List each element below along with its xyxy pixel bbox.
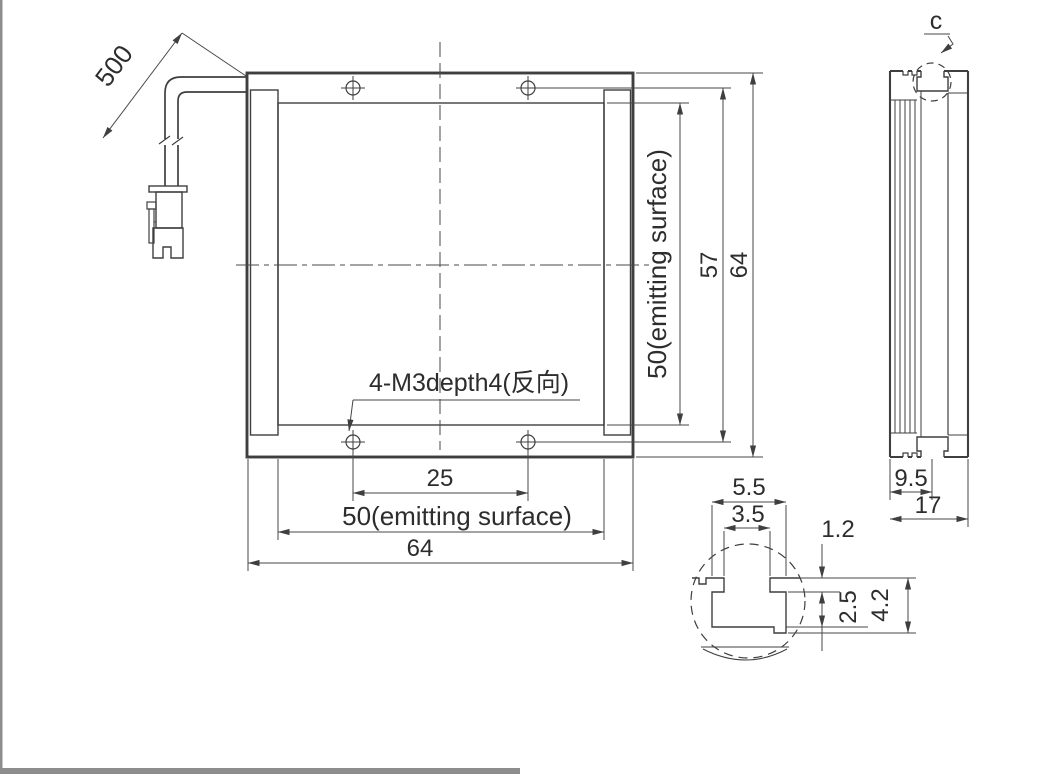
hole-note-label: 4-M3depth4(反向) — [369, 369, 569, 397]
dim-total-depth-label: 4.2 — [867, 588, 894, 621]
dim-lip-thickness-label: 1.2 — [821, 516, 854, 543]
detail-label: c — [930, 7, 943, 35]
detail-view-c: 5.5 3.5 1.2 2.5 4.2 — [691, 474, 916, 660]
power-cable — [159, 77, 247, 186]
drawing-page: 500 4-M3depth4(反向) 50(emitting surface) … — [0, 0, 1044, 774]
dim-outer-width-label: 5.5 — [732, 474, 765, 501]
dim-slot-offset-label: 9.5 — [894, 465, 927, 492]
dim-emitting-bottom-label: 50(emitting surface) — [342, 501, 572, 531]
side-extrusion-lines — [890, 91, 968, 437]
dim-lip-thickness: 1.2 — [788, 516, 916, 592]
dim-thickness-label: 17 — [915, 492, 942, 519]
page-bottom-edge — [0, 768, 520, 774]
dim-inner-depth: 2.5 — [786, 590, 868, 651]
hole-note: 4-M3depth4(反向) — [349, 369, 580, 431]
side-bottom-slot — [917, 437, 948, 457]
front-right-strip — [604, 90, 631, 435]
detail-circle-small — [913, 63, 951, 101]
technical-drawing: 500 4-M3depth4(反向) 50(emitting surface) … — [0, 0, 1044, 774]
dim-hole-spacing-y: 57 — [696, 88, 723, 442]
side-view: c 9.5 17 — [890, 7, 968, 527]
dim-cable-length-label: 500 — [89, 39, 139, 92]
dim-overall-bottom-label: 64 — [407, 535, 434, 562]
detail-circle-large — [691, 544, 805, 658]
dim-emitting-right-label: 50(emitting surface) — [642, 149, 672, 379]
dim-hole-spacing-x: 25 — [353, 452, 528, 501]
cable-connector — [147, 186, 187, 258]
dim-hole-spacing-x-label: 25 — [427, 465, 454, 492]
dim-hole-spacing-y-label: 57 — [696, 252, 723, 279]
slot-profile — [692, 578, 800, 633]
dim-inner-depth-label: 2.5 — [835, 590, 862, 623]
page-left-edge — [0, 0, 3, 774]
side-top-slot — [917, 71, 948, 91]
detail-callout-c: c — [913, 7, 953, 101]
dim-overall-right-label: 64 — [726, 252, 753, 279]
front-view: 500 4-M3depth4(反向) 50(emitting surface) … — [89, 33, 763, 571]
front-left-strip — [251, 90, 279, 435]
dim-inner-width: 3.5 — [724, 501, 770, 576]
dim-inner-width-label: 3.5 — [731, 501, 764, 528]
dim-emitting-right: 50(emitting surface) — [607, 103, 689, 425]
dim-cable-length: 500 — [89, 33, 246, 138]
side-outline — [890, 71, 968, 457]
